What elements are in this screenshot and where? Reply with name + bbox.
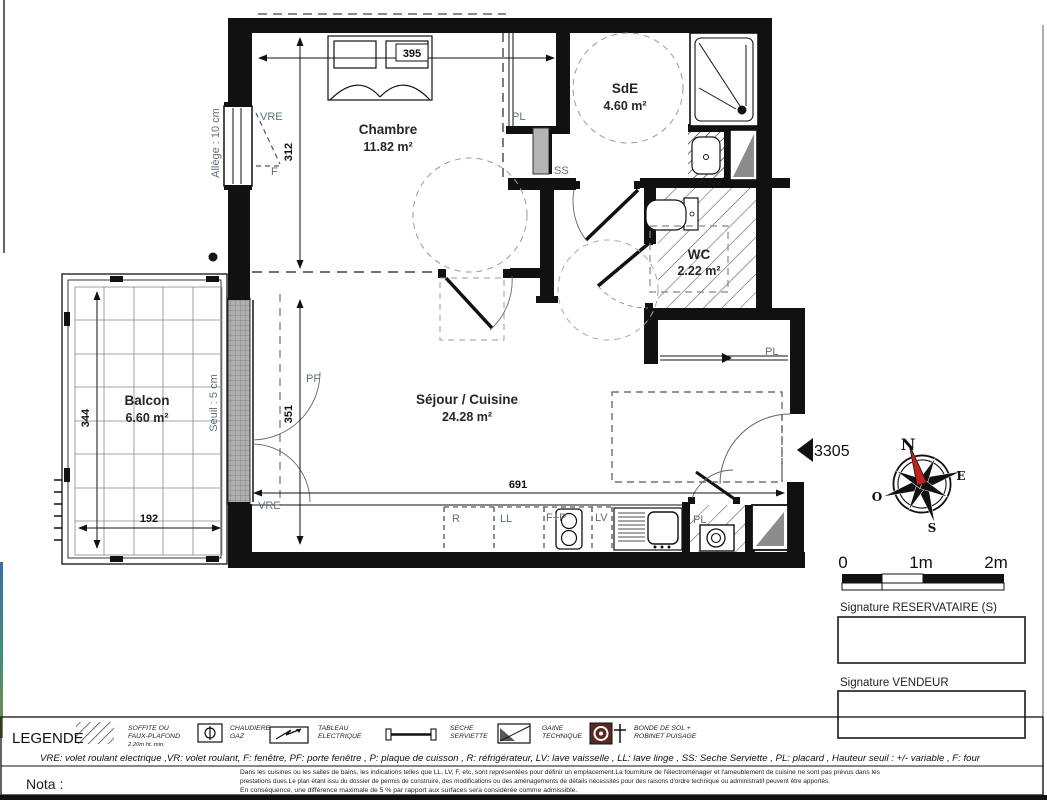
floor-plan-drawing: 395 312 344 192 351 691 Chambre 11.82 m²… xyxy=(0,0,1047,800)
dim-chambre-width: 395 xyxy=(403,48,421,60)
legend-item-label: ELECTRIQUE xyxy=(318,733,362,740)
compass-e: E xyxy=(956,469,965,483)
left-edge-color-strip xyxy=(0,562,3,738)
dim-sejour-width: 691 xyxy=(509,479,527,491)
scale-1m: 1m xyxy=(909,553,933,572)
signature-reservataire-box xyxy=(838,617,1025,663)
room-name-sejour: Séjour / Cuisine xyxy=(416,392,519,407)
sejour-bay-glazing xyxy=(228,294,253,508)
tableau-electrique-icon xyxy=(270,727,308,743)
room-name-wc: WC xyxy=(688,247,711,262)
label-f-window: F xyxy=(271,166,278,178)
signature-vendeur-box xyxy=(838,691,1025,738)
legend-item-label: SECHE xyxy=(450,725,474,732)
dim-bay-height: 351 xyxy=(283,405,295,423)
legend-item-label: GAZ xyxy=(230,733,245,740)
legend-item-label: ROBINET PUISAGE xyxy=(634,733,697,740)
kitchen-units-dashed xyxy=(444,507,612,548)
room-area-sde: 4.60 m² xyxy=(603,99,646,113)
label-pl-kitchen: PL xyxy=(693,514,706,526)
legend-item-label: TABLEAU xyxy=(318,725,349,732)
legend-item-label: GAINE xyxy=(542,725,564,732)
turning-circle xyxy=(413,158,527,272)
label-seuil: Seuil : 5 cm xyxy=(208,374,220,431)
turning-circle xyxy=(558,240,658,340)
label-ss: SS xyxy=(554,165,569,177)
signature-vendeur-label: Signature VENDEUR xyxy=(840,677,949,689)
sde-door-leaf xyxy=(586,190,638,240)
legend-item-label: CHAUDIERE xyxy=(230,725,270,732)
nota-line: En conséquence, une différence maximale … xyxy=(240,787,577,794)
label-vre-top: VRE xyxy=(260,111,283,123)
label-fridge: R xyxy=(452,513,460,525)
kitchen-sink xyxy=(614,508,682,550)
dim-balcon-depth: 344 xyxy=(80,408,92,427)
unit-number-marker: 3305 xyxy=(797,438,850,462)
legend-item-label: BONDE DE SOL + xyxy=(634,725,691,732)
label-pl-top: PL xyxy=(512,111,525,123)
nota-line: prestations dues.Le plan étant issu du d… xyxy=(240,778,830,785)
wc-door-leaf xyxy=(598,244,648,286)
room-area-chambre: 11.82 m² xyxy=(363,140,412,154)
placard-door-leaf xyxy=(696,472,736,500)
balcony-edge-ticks xyxy=(54,480,62,540)
scale-bar: 0 1m 2m xyxy=(838,553,1008,590)
label-dishwasher: LV xyxy=(595,512,608,524)
legend-abbreviations: VRE: volet roulant electrique ,VR: volet… xyxy=(40,753,981,764)
towel-radiator xyxy=(533,128,552,174)
room-area-balcon: 6.60 m² xyxy=(125,411,168,425)
compass-n: N xyxy=(901,435,916,454)
legend-item-label: TECHNIQUE xyxy=(542,733,582,740)
label-pf: PF xyxy=(306,373,320,385)
compass-s: S xyxy=(928,521,937,535)
signature-reservataire-label: Signature RESERVATAIRE (S) xyxy=(840,602,997,614)
label-vre-balcony: VRE xyxy=(258,500,281,512)
chaudiere-gaz-icon xyxy=(198,724,222,742)
unit-arrow-icon xyxy=(797,438,813,462)
dim-balcon-width: 192 xyxy=(140,513,158,525)
technical-duct-top xyxy=(730,130,757,180)
compass-rose: N E O S xyxy=(870,431,974,535)
chambre-door-leaf xyxy=(446,278,492,328)
legend-item-label: SERVIETTE xyxy=(450,733,488,740)
balcony-tap-dot xyxy=(209,253,218,262)
kitchen-zone-dashed xyxy=(612,392,782,482)
floor-plan-sheet: 395 312 344 192 351 691 Chambre 11.82 m²… xyxy=(0,0,1047,800)
room-area-wc: 2.22 m² xyxy=(677,264,720,278)
unit-number: 3305 xyxy=(814,443,850,460)
label-pl-hall: PL xyxy=(765,346,778,358)
dim-chambre-depth: 312 xyxy=(283,143,295,161)
room-name-sde: SdE xyxy=(612,81,638,96)
washbasin xyxy=(688,132,724,178)
gaine-technique-icon xyxy=(498,724,530,743)
label-oven-hob: F+P xyxy=(546,512,566,524)
legend-item-label: SOFFITE OU xyxy=(128,725,169,732)
room-area-sejour: 24.28 m² xyxy=(442,410,492,424)
technical-duct-bottom xyxy=(752,505,788,550)
nota-line: Dans les cuisines ou les salles de bains… xyxy=(240,769,881,776)
seche-serviette-icon xyxy=(386,729,436,740)
label-allege: Allège : 10 cm xyxy=(210,108,222,178)
legend-item-sub: 2.20m ht. min. xyxy=(127,742,165,748)
label-washer: LL xyxy=(500,513,512,525)
scale-2m: 2m xyxy=(984,553,1008,572)
legend-title: LEGENDE xyxy=(12,730,84,747)
legend-item-label: FAUX-PLAFOND xyxy=(128,733,180,740)
bonde-de-sol-icon xyxy=(590,723,626,744)
toilet xyxy=(646,198,698,230)
room-name-chambre: Chambre xyxy=(359,122,418,137)
compass-o: O xyxy=(872,490,882,504)
scale-0: 0 xyxy=(838,553,847,572)
soffite-hatch-icon xyxy=(76,722,114,744)
entry-door-arc xyxy=(720,414,790,484)
room-name-balcon: Balcon xyxy=(124,393,169,408)
nota-label: Nota : xyxy=(26,776,63,792)
shower xyxy=(690,33,758,126)
